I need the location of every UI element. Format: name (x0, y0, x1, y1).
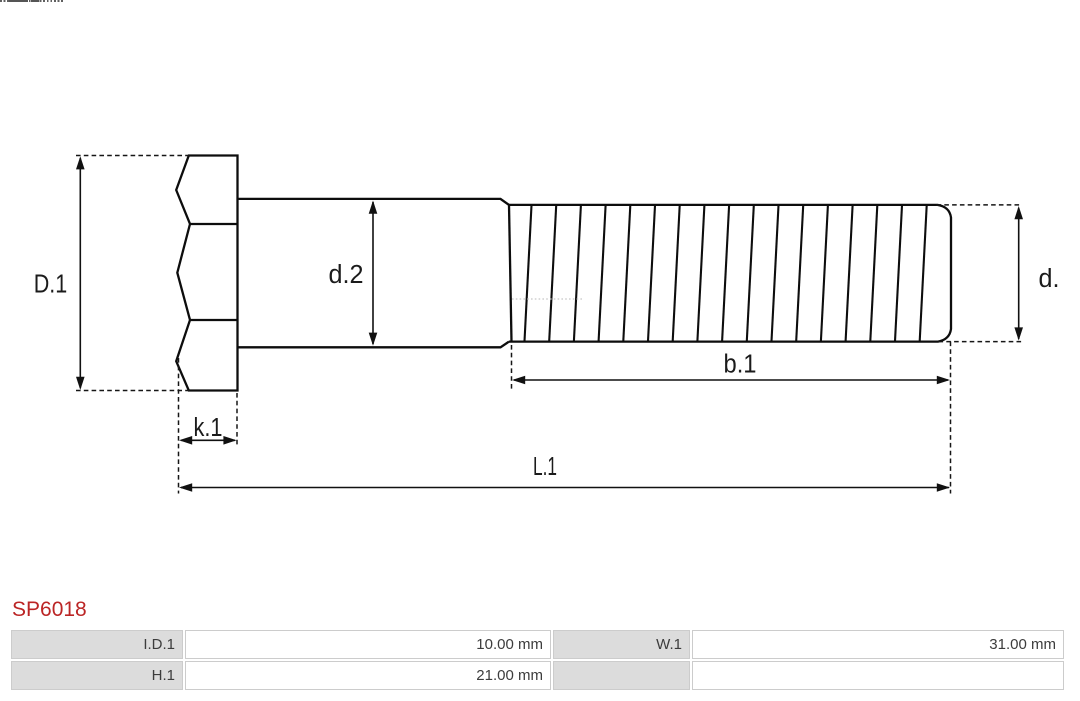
svg-text:b.1: b.1 (724, 351, 757, 379)
svg-text:d.2: d.2 (329, 261, 364, 289)
svg-text:d.: d. (1039, 265, 1060, 293)
svg-text:L.1: L.1 (533, 453, 557, 481)
svg-text:D.1: D.1 (34, 271, 68, 299)
svg-text:k.1: k.1 (194, 414, 223, 442)
